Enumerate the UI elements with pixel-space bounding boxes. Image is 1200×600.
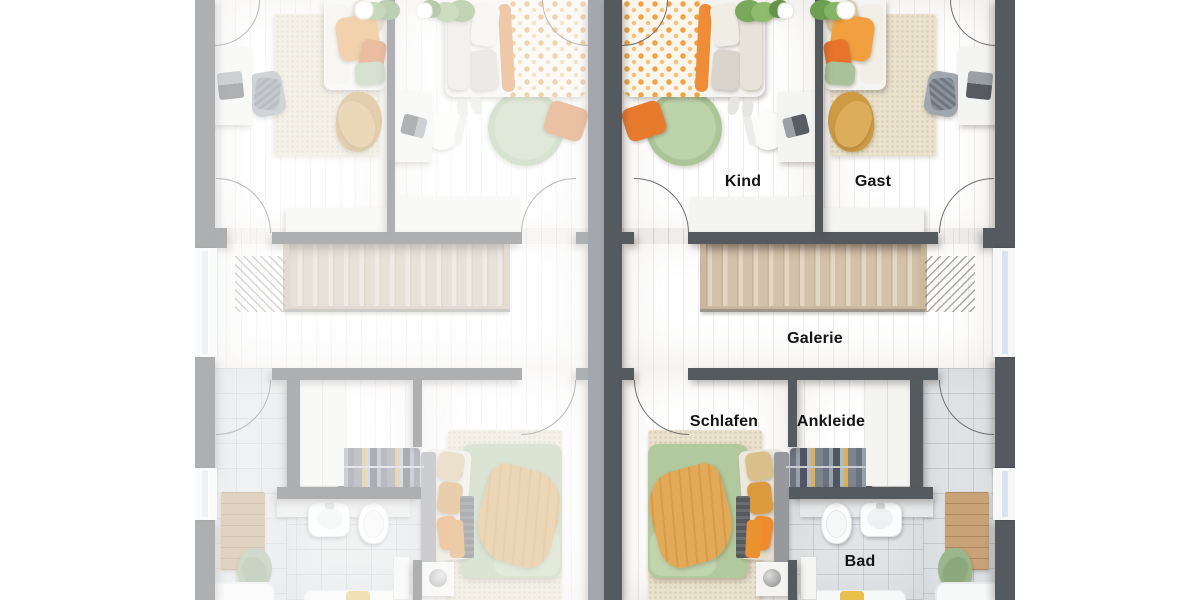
exterior-wall-lower: [195, 520, 215, 600]
window-galerie: [195, 248, 217, 357]
sideboard-kind: [690, 197, 818, 235]
towel-yellow: [840, 591, 864, 600]
staircase: [283, 244, 510, 312]
bidet-basin: [317, 508, 343, 529]
pillow-tan: [744, 450, 774, 481]
plant-pot: [356, 2, 372, 18]
exterior-wall-mid: [995, 357, 1015, 468]
unit-left: [195, 0, 622, 600]
clothes-rail: [334, 466, 424, 468]
toilet-seat: [826, 510, 847, 538]
bathtub: [209, 582, 275, 600]
plant-pot: [838, 2, 854, 18]
sideboard-kind: [392, 197, 520, 235]
wall-kind-gast: [815, 0, 823, 232]
towel-orange: [448, 520, 465, 559]
wall-top-main: [272, 232, 522, 244]
window-glass: [1001, 471, 1008, 517]
lamp-sphere: [429, 569, 447, 587]
wall-schlafen-stub: [413, 560, 422, 600]
staircase: [700, 244, 927, 312]
chair-cushion: [253, 77, 281, 111]
party-wall-light: [588, 0, 604, 600]
pillow-green: [824, 61, 856, 86]
exterior-wall-lower: [995, 520, 1015, 600]
window-glass: [202, 471, 209, 517]
hanging-clothes: [338, 448, 420, 490]
wall-schlafen-stub: [788, 560, 797, 600]
chair-cushion: [928, 77, 956, 111]
unit-right: Kind Gast Galerie Schlafen Ankleide Bad: [588, 0, 1015, 600]
bath-half-wall: [277, 487, 421, 499]
exterior-wall-mid: [195, 357, 215, 468]
sideboard-gast: [286, 208, 388, 232]
wall-top-main: [688, 232, 938, 244]
room-label-ankleide: Ankleide: [797, 413, 865, 431]
room-label-schlafen: Schlafen: [690, 413, 758, 431]
laptop: [966, 71, 994, 100]
pillow: [710, 49, 742, 92]
towel-yellow: [346, 591, 370, 600]
wall-bottom-stub: [622, 368, 634, 380]
door-leaf: [800, 556, 817, 600]
room-label-gast: Gast: [855, 173, 891, 191]
room-label-bad: Bad: [845, 553, 876, 571]
window-glass: [1001, 251, 1008, 354]
wall-ankleide-bad: [910, 380, 923, 487]
wardrobe: [866, 380, 910, 486]
wall-bottom-main: [272, 368, 522, 380]
window-bad: [993, 468, 1015, 520]
faucet: [876, 503, 885, 509]
wall-kind-gast: [387, 0, 395, 232]
hanging-clothes: [790, 448, 872, 490]
bath-half-wall: [789, 487, 933, 499]
plant-gast: [810, 0, 862, 24]
window-glass: [202, 251, 209, 354]
plant-pot: [417, 4, 431, 18]
window-bad: [195, 468, 217, 520]
plant-pot: [779, 4, 793, 18]
clothes-rail: [786, 466, 876, 468]
stair-railing: [700, 309, 925, 312]
pillow-green: [354, 61, 386, 86]
wall-top-stub: [576, 232, 588, 244]
exterior-wall-upper: [195, 0, 215, 248]
wardrobe-divider: [887, 380, 888, 486]
room-label-galerie: Galerie: [787, 330, 843, 348]
headboard: [774, 452, 789, 568]
room-label-kind: Kind: [725, 173, 761, 191]
pillow-tan: [436, 450, 466, 481]
exterior-wall-notch: [983, 228, 995, 248]
towel-orange: [745, 520, 762, 559]
stair-railing: [285, 309, 510, 312]
bathtub: [935, 582, 1001, 600]
bidet-basin: [867, 508, 893, 529]
sideboard-gast: [822, 208, 924, 232]
headboard: [421, 452, 436, 568]
toilet-seat: [363, 510, 384, 538]
plant-kind: [735, 0, 793, 26]
wall-schlafen-ankleide: [788, 380, 797, 447]
wardrobe-divider: [322, 380, 323, 486]
exterior-wall-upper: [995, 0, 1015, 248]
wall-bottom-main: [688, 368, 938, 380]
wall-bottom-stub: [576, 368, 588, 380]
party-wall: [604, 0, 622, 600]
laptop: [217, 71, 245, 100]
plant-kind: [417, 0, 475, 26]
wall-schlafen-ankleide: [413, 380, 422, 447]
lamp-sphere: [763, 569, 781, 587]
stair-handrail-hatch: [925, 256, 975, 312]
exterior-wall-notch: [215, 228, 227, 248]
stair-handrail-hatch: [235, 256, 285, 312]
door-leaf: [393, 556, 410, 600]
wall-ankleide-bad: [287, 380, 300, 487]
window-galerie: [993, 248, 1015, 357]
plant-gast: [348, 0, 400, 24]
pillow: [468, 49, 500, 92]
faucet: [325, 503, 334, 509]
floor-plan-scene: Kind Gast Galerie Schlafen Ankleide Bad: [0, 0, 1200, 600]
pillow-orange: [746, 481, 773, 515]
wall-top-stub: [622, 232, 634, 244]
